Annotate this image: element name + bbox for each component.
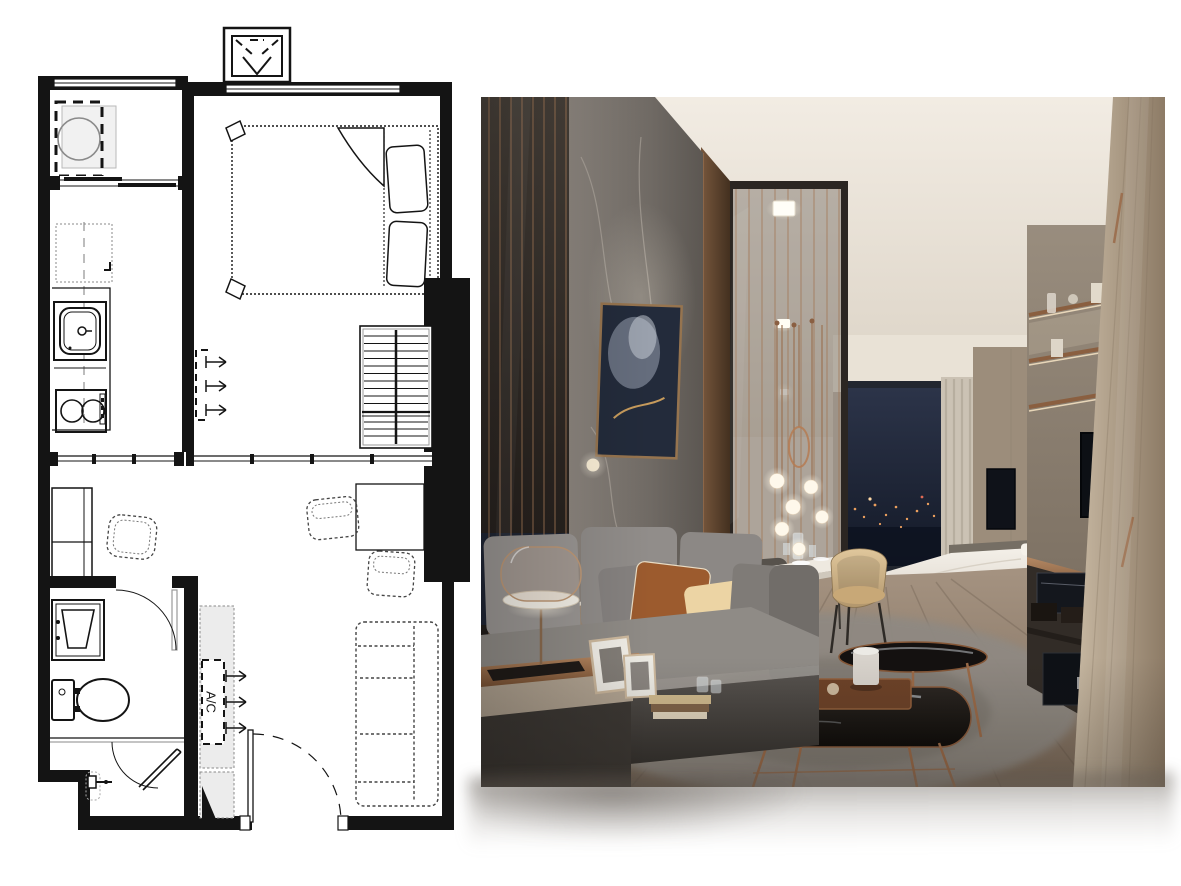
interior-render-photo bbox=[481, 97, 1165, 787]
laundry-sliding-door-icon bbox=[50, 176, 188, 190]
ac-condenser-icon bbox=[224, 28, 290, 82]
page-canvas: A/C bbox=[0, 0, 1181, 886]
double-bed-icon bbox=[226, 121, 438, 299]
washing-machine-icon bbox=[56, 102, 116, 176]
toilet-icon bbox=[52, 679, 129, 721]
stool-icon bbox=[106, 514, 158, 561]
glass-partition-icon bbox=[50, 452, 442, 466]
wardrobe-icon bbox=[360, 326, 432, 448]
floor-plan-drawing: A/C bbox=[0, 0, 470, 886]
ac-label: A/C bbox=[204, 691, 219, 713]
bedroom-ac-icon bbox=[196, 350, 226, 420]
dining-table-icon bbox=[356, 484, 424, 550]
sofa-icon bbox=[356, 622, 438, 806]
living-ac-icon: A/C bbox=[202, 660, 246, 744]
bathroom-sink-icon bbox=[52, 600, 104, 660]
shower-icon bbox=[50, 738, 184, 790]
dresser-icon bbox=[52, 488, 92, 584]
night-city-window bbox=[841, 381, 947, 573]
bed-pillows-icon bbox=[386, 145, 429, 287]
vignette-bottom bbox=[481, 657, 1165, 787]
bathroom-door-icon bbox=[116, 590, 177, 650]
floor-plan: A/C bbox=[0, 0, 470, 886]
photo-shadow-left bbox=[480, 780, 810, 840]
interior-render bbox=[481, 97, 1165, 787]
entrance-door-icon bbox=[240, 730, 348, 830]
stove-icon bbox=[56, 390, 106, 432]
kitchen-sink-icon bbox=[54, 302, 106, 360]
